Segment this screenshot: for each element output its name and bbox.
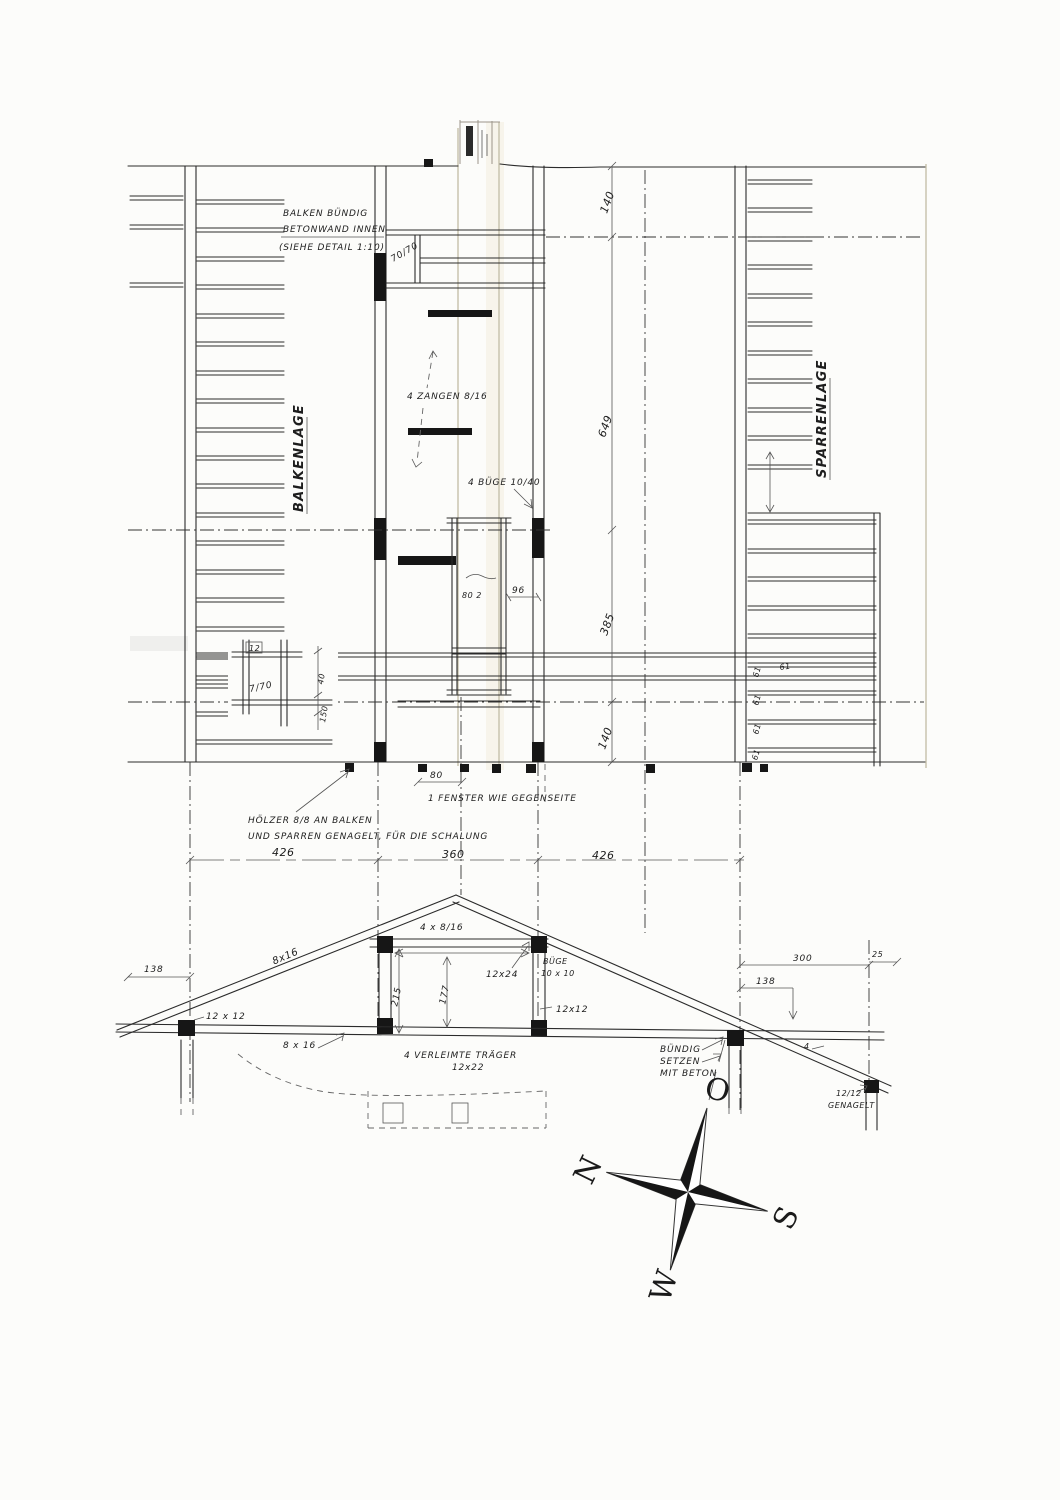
label-buege: BÜGE xyxy=(543,956,568,966)
label-12x12-right: 12x12 xyxy=(556,1005,588,1015)
truss-section: 8x16 4 x 8/16 215 177 12x24 BÜGE 10 x 10… xyxy=(116,895,901,1130)
note-glulam-line2: 12x22 xyxy=(452,1063,484,1073)
framing-plan: BALKEN BÜNDIG BETONWAND INNEN (SIEHE DET… xyxy=(128,159,925,1110)
note-glulam-line1: 4 VERLEIMTE TRÄGER xyxy=(404,1050,517,1061)
collar-label-4x8-16: 4 x 8/16 xyxy=(420,923,463,933)
dim-96: 96 xyxy=(512,586,525,596)
dim-25: 25 xyxy=(872,950,883,959)
height-dimension-line xyxy=(608,162,616,766)
dim-70-70: 70/70 xyxy=(390,241,421,265)
compass-south-label: S xyxy=(766,1201,806,1235)
label-12x24: 12x24 xyxy=(486,970,518,980)
dim-138-right: 138 xyxy=(756,977,776,987)
sparren-spacing-61: 61 xyxy=(751,722,763,735)
blueprint-scan: BALKEN BÜNDIG BETONWAND INNEN (SIEHE DET… xyxy=(0,0,1060,1500)
note-buendig-line1: BÜNDIG xyxy=(660,1044,701,1055)
dim-426-right: 426 xyxy=(592,849,615,862)
compass-north-label: N xyxy=(567,1151,610,1190)
detail-12: 12 xyxy=(249,644,260,653)
note-hoelzer-line1: HÖLZER 8/8 AN BALKEN xyxy=(248,815,373,826)
sparren-spacing-61: 61 xyxy=(779,662,791,672)
nail-note-line1: 12/12 xyxy=(836,1089,862,1098)
dim-426-left: 426 xyxy=(272,846,295,859)
label-balkenlage: BALKENLAGE xyxy=(292,404,307,512)
dim-360: 360 xyxy=(442,848,465,861)
dim-649: 649 xyxy=(596,413,616,439)
sparren-spacing-61: 61 xyxy=(751,693,763,706)
note-buendig-line2: SETZEN xyxy=(660,1057,700,1067)
label-buege-size: 10 x 10 xyxy=(541,969,575,978)
nailing-blocks xyxy=(345,763,768,773)
dim-140-bottom: 140 xyxy=(596,725,616,751)
mark-4: 4 xyxy=(804,1042,810,1051)
compass-west-label: W xyxy=(643,1266,686,1306)
label-sparrenlage: SPARRENLAGE xyxy=(815,359,830,478)
sparren-spacing-61: 61 xyxy=(750,748,762,761)
dim-window-80: 80 xyxy=(430,771,443,781)
rafter-label-8x16: 8x16 xyxy=(271,947,301,968)
dim-300: 300 xyxy=(793,954,813,964)
chord-label-8x16: 8 x 16 xyxy=(283,1041,316,1051)
dim-385: 385 xyxy=(598,611,618,637)
note-hoelzer-line2: UND SPARREN GENAGELT, FÜR DIE SCHALUNG xyxy=(248,831,488,842)
detail-40: 40 xyxy=(316,672,327,685)
note-balken-line3: (SIEHE DETAIL 1:10) xyxy=(279,243,385,253)
dim-215: 215 xyxy=(390,986,404,1007)
note-balken-line2: BETONWAND INNEN xyxy=(283,225,386,235)
dim-140-top: 140 xyxy=(598,189,618,215)
dim-177: 177 xyxy=(438,984,452,1005)
compass-rose: O N S W xyxy=(567,1040,807,1306)
note-buege: 4 BÜGE 10/40 xyxy=(468,477,540,488)
nail-note-line2: GENAGELT xyxy=(828,1101,875,1110)
plan-annotations: 80 1 FENSTER WIE GEGENSEITE HÖLZER 8/8 A… xyxy=(186,764,745,864)
dim-138-left: 138 xyxy=(144,965,164,975)
dim-80-2: 80 2 xyxy=(462,591,482,600)
note-balken-line1: BALKEN BÜNDIG xyxy=(283,208,368,219)
note-zangen: 4 ZANGEN 8/16 xyxy=(407,392,488,402)
note-fenster: 1 FENSTER WIE GEGENSEITE xyxy=(428,794,577,804)
balkenlage-joists xyxy=(197,200,284,631)
sparrenlage-rafters xyxy=(748,180,812,469)
label-12x12-left: 12 x 12 xyxy=(206,1012,246,1022)
